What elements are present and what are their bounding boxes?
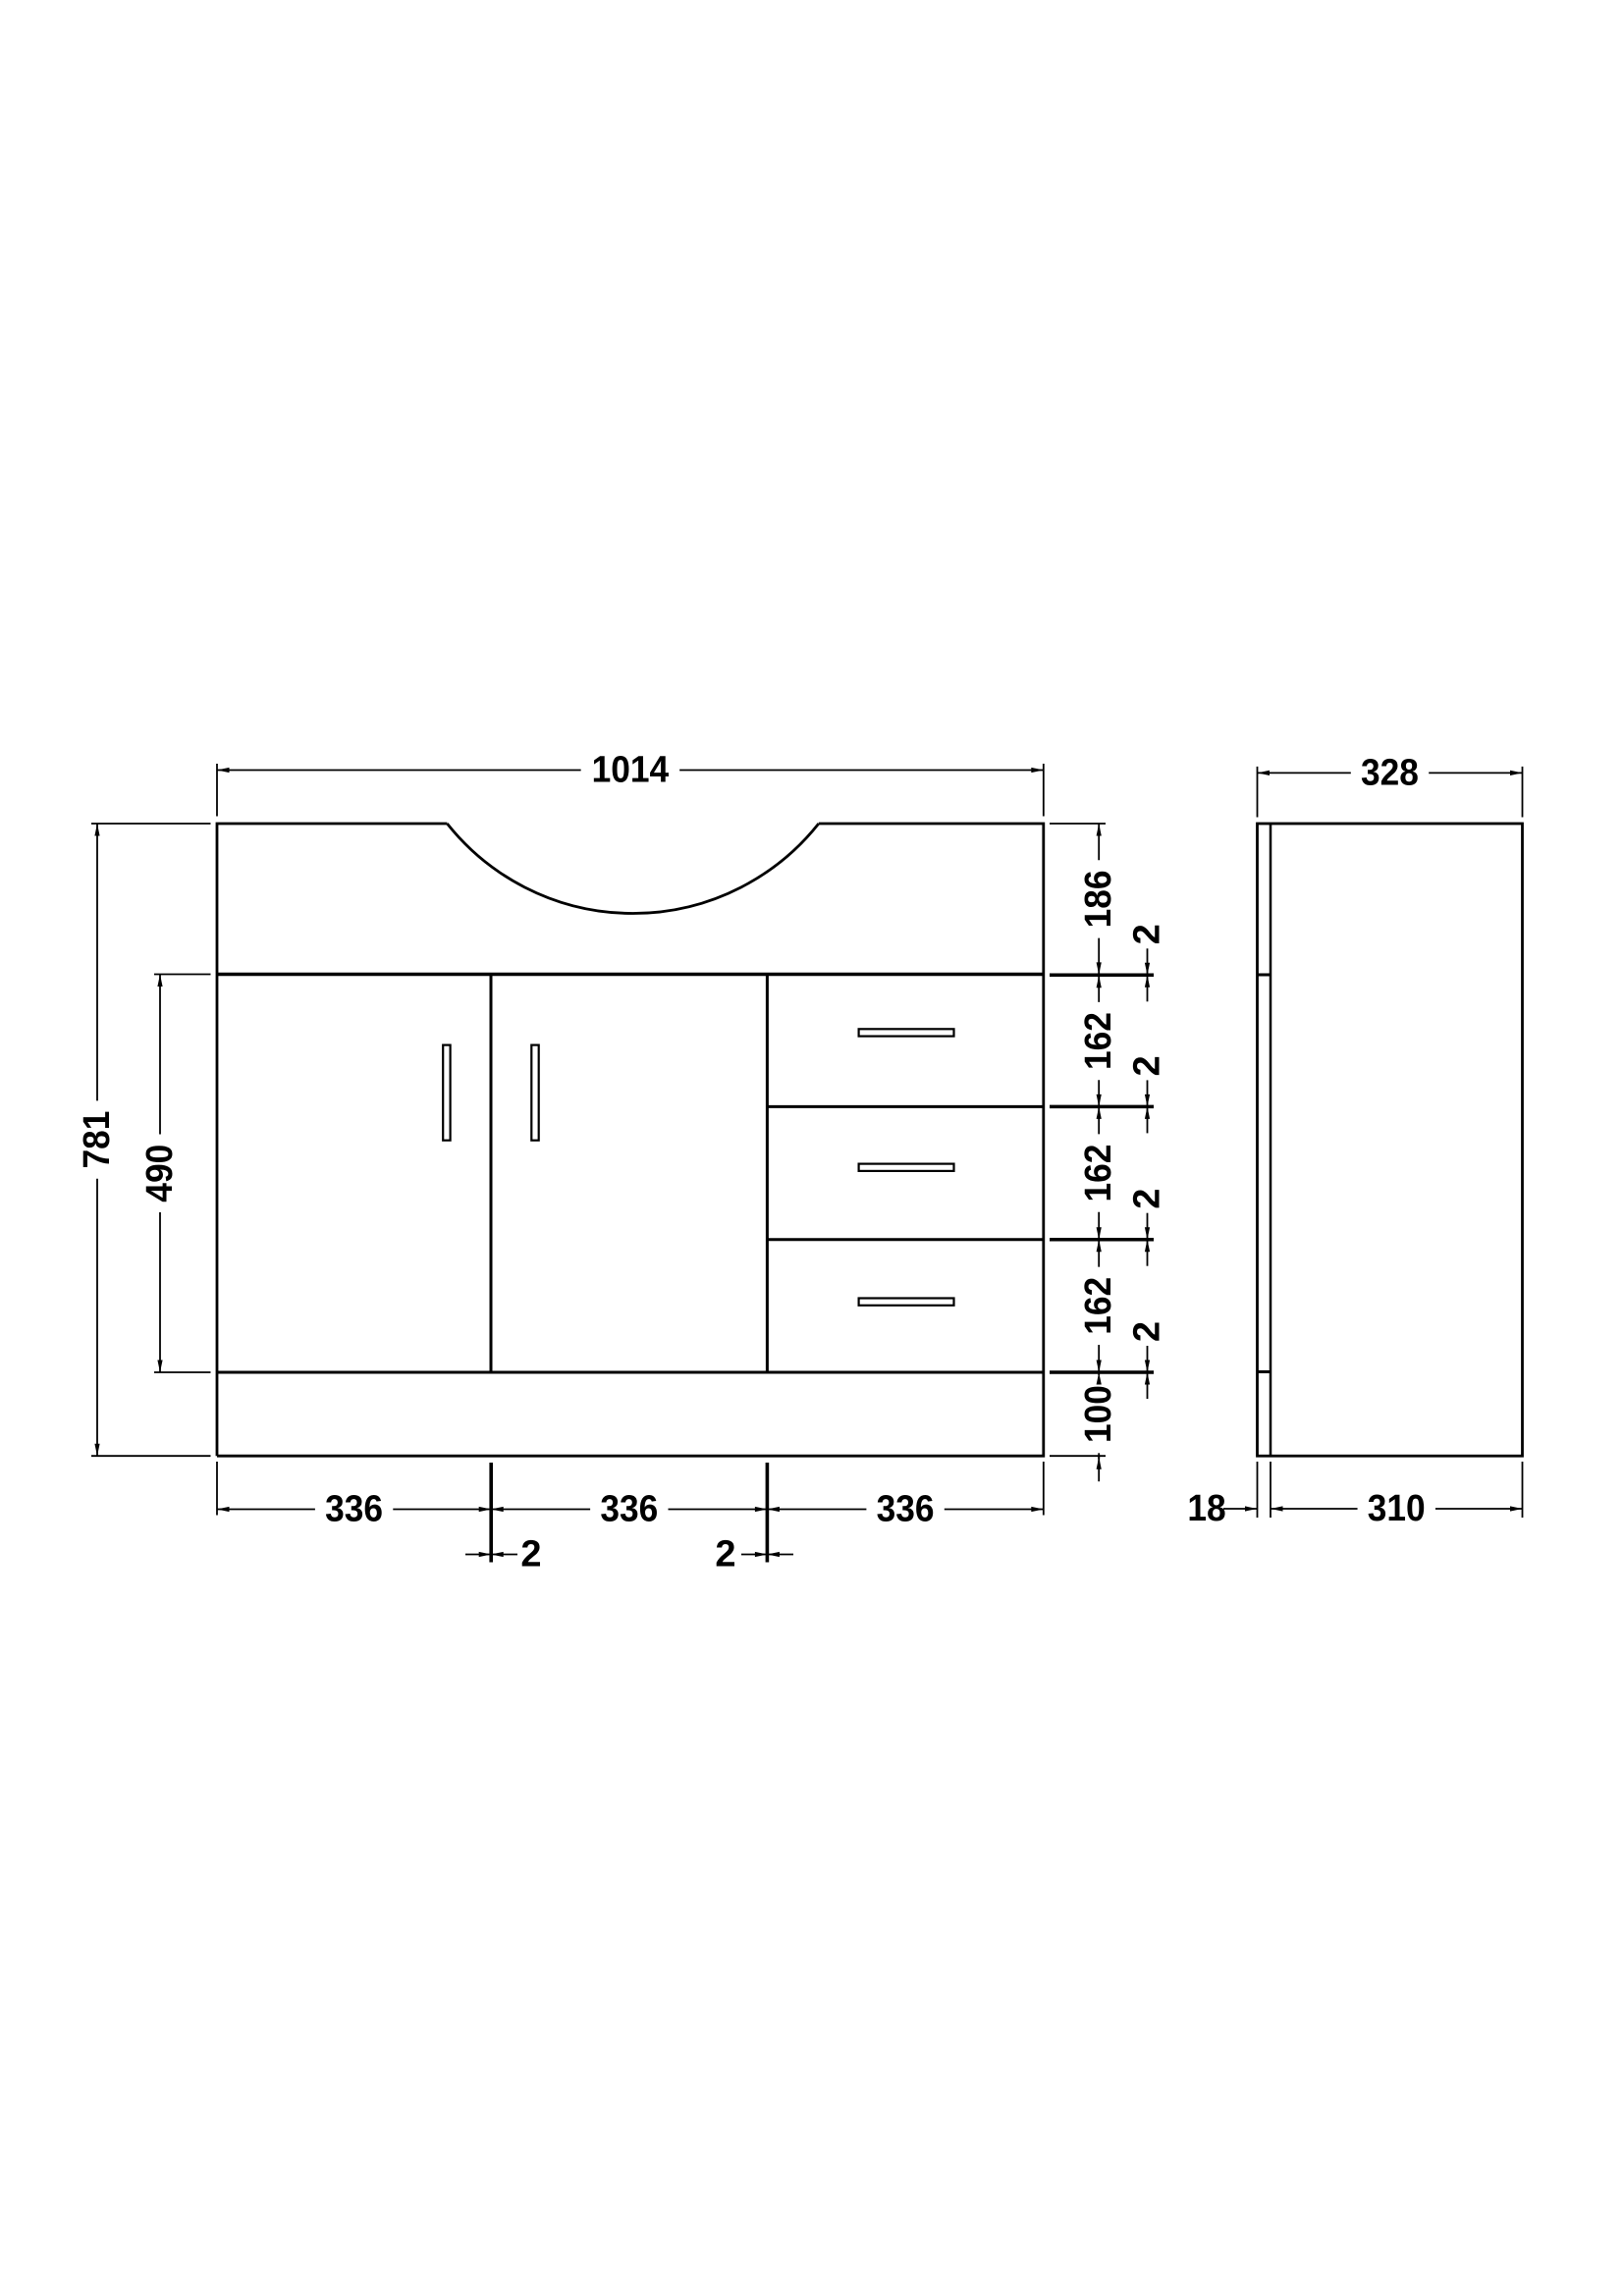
- svg-text:1014: 1014: [592, 750, 670, 791]
- svg-text:2: 2: [1127, 924, 1168, 944]
- svg-text:18: 18: [1187, 1488, 1225, 1529]
- svg-text:781: 781: [77, 1111, 118, 1169]
- svg-text:2: 2: [1127, 1321, 1168, 1342]
- svg-text:2: 2: [1127, 1189, 1168, 1209]
- svg-text:336: 336: [325, 1489, 383, 1530]
- svg-text:310: 310: [1368, 1488, 1426, 1529]
- svg-text:336: 336: [600, 1489, 658, 1530]
- svg-text:186: 186: [1078, 871, 1119, 929]
- svg-text:100: 100: [1078, 1385, 1119, 1443]
- svg-text:2: 2: [715, 1534, 735, 1575]
- svg-text:2: 2: [1127, 1055, 1168, 1076]
- svg-text:162: 162: [1078, 1145, 1119, 1202]
- svg-text:328: 328: [1361, 752, 1419, 793]
- svg-text:162: 162: [1078, 1012, 1119, 1070]
- svg-text:336: 336: [877, 1489, 935, 1530]
- svg-text:2: 2: [520, 1534, 541, 1575]
- svg-text:162: 162: [1078, 1277, 1119, 1335]
- svg-text:490: 490: [139, 1145, 181, 1202]
